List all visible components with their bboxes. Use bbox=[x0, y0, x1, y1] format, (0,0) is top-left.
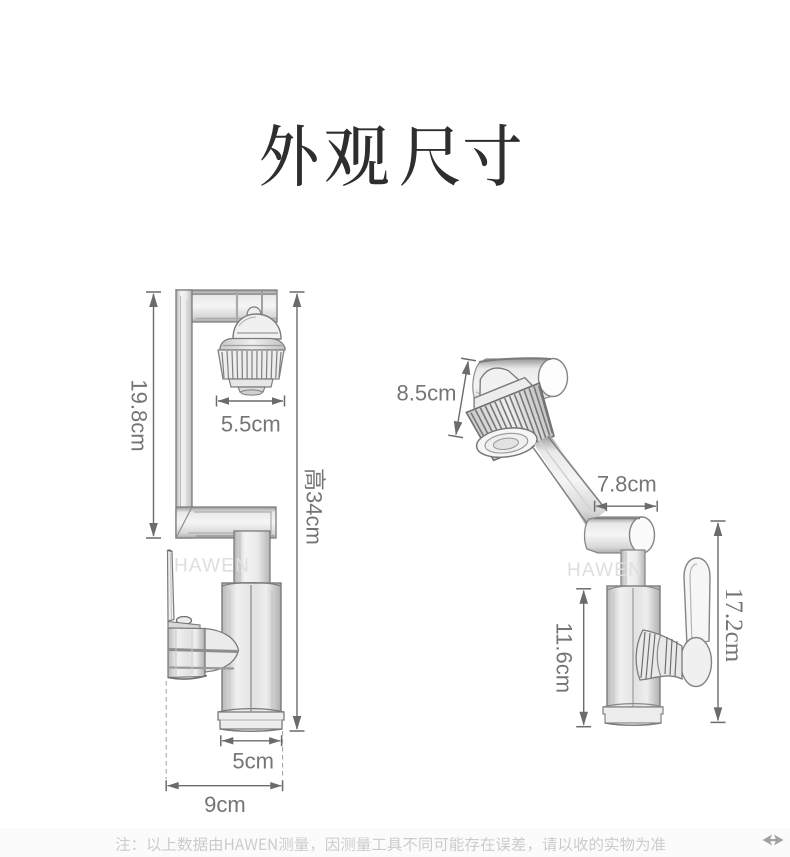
svg-text:HAWEN: HAWEN bbox=[174, 556, 250, 577]
svg-text:19.8cm: 19.8cm bbox=[127, 379, 152, 451]
svg-text:17.2cm: 17.2cm bbox=[720, 588, 747, 663]
svg-text:HAWEN: HAWEN bbox=[567, 560, 643, 581]
svg-text:11.6cm: 11.6cm bbox=[552, 623, 577, 694]
svg-text:8.5cm: 8.5cm bbox=[397, 381, 457, 406]
svg-text:7.8cm: 7.8cm bbox=[597, 472, 657, 497]
svg-text:5cm: 5cm bbox=[232, 749, 274, 774]
svg-text:9cm: 9cm bbox=[204, 792, 246, 817]
svg-text:5.5cm: 5.5cm bbox=[221, 412, 281, 437]
svg-text:34cm: 34cm bbox=[302, 491, 327, 545]
